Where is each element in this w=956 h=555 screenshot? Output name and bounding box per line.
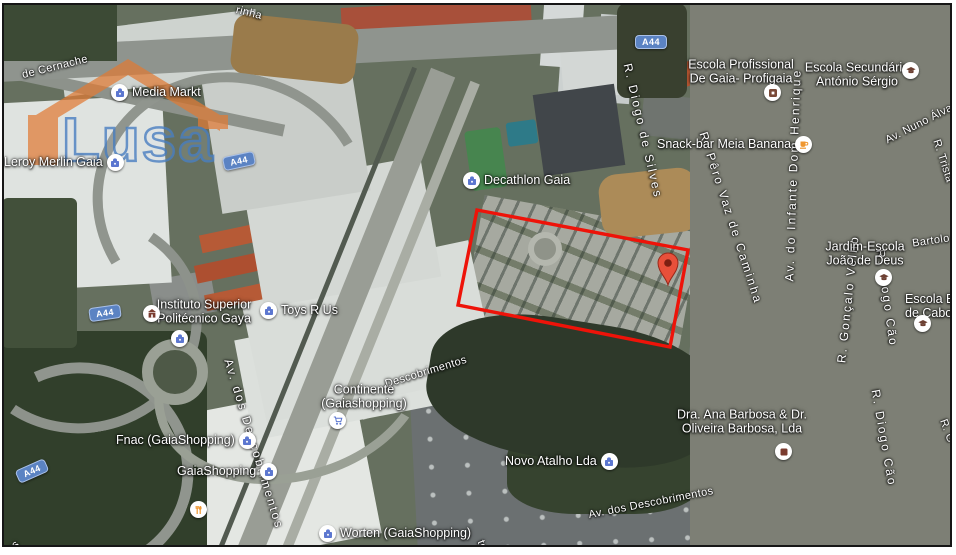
poi-worten[interactable]: Worten (GaiaShopping) xyxy=(319,525,471,542)
poi-label: Fnac (GaiaShopping) xyxy=(116,433,235,447)
map-marker-pin[interactable] xyxy=(658,253,678,285)
shopping-bag-icon xyxy=(260,463,277,480)
shopping-bag-icon xyxy=(239,432,256,449)
doctor-office-icon xyxy=(775,443,792,460)
poi-label-line1: Escola Ba xyxy=(905,292,952,306)
poi-escola-cabo[interactable]: Escola Ba de Cabo- xyxy=(905,292,952,321)
shopping-cart-icon xyxy=(329,412,346,429)
poi-label: Worten (GaiaShopping) xyxy=(340,526,471,540)
poi-continente[interactable]: Continente (Gaiashopping) xyxy=(321,383,406,412)
poi-snack-bar[interactable]: Snack-bar Meia Banana xyxy=(657,136,812,153)
poi-label: Novo Atalho Lda xyxy=(505,454,597,468)
poi-instituto-politecnico[interactable]: Instituto Superior Politécnico Gaya xyxy=(157,298,252,327)
poi-gaiashopping[interactable]: GaiaShopping xyxy=(177,463,277,480)
poi-label-line1: Dra. Ana Barbosa & Dr. xyxy=(677,408,807,422)
poi-label: Toys R Us xyxy=(281,303,338,317)
poi-label-line2: Oliveira Barbosa, Lda xyxy=(682,422,802,436)
poi-label: Decathlon Gaia xyxy=(484,173,570,187)
poi-label-line2: (Gaiashopping) xyxy=(321,397,406,411)
poi-label: Leroy Merlin Gaia xyxy=(4,155,103,169)
poi-escola-secundaria[interactable]: Escola Secundária António Sérgio xyxy=(805,61,909,90)
poi-novo-atalho[interactable]: Novo Atalho Lda xyxy=(505,453,618,470)
route-badge-a44: A44 xyxy=(635,35,667,49)
shopping-bag-icon xyxy=(601,453,618,470)
shopping-bag-icon xyxy=(319,525,336,542)
poi-label: Media Markt xyxy=(132,85,201,99)
cafe-cup-icon xyxy=(795,136,812,153)
shopping-bag-icon xyxy=(107,154,124,171)
poi-decathlon[interactable]: Decathlon Gaia xyxy=(463,172,570,189)
restaurant-icon xyxy=(190,501,207,518)
poi-label-line2: João de Deus xyxy=(826,254,903,268)
poi-toys-r-us[interactable]: Toys R Us xyxy=(260,302,338,319)
parcel-outline xyxy=(458,210,688,347)
poi-label-line1: Escola Secundária xyxy=(805,61,909,75)
shopping-bag-icon xyxy=(171,330,188,347)
satellite-map[interactable]: Lusa A44 A44 A44 A44 de Cernache rinha A… xyxy=(2,3,952,547)
poi-leroy-merlin[interactable]: Leroy Merlin Gaia xyxy=(4,154,124,171)
poi-label: Snack-bar Meia Banana xyxy=(657,137,791,151)
graduation-cap-icon xyxy=(875,269,892,286)
poi-label-line2: De Gaia- Profigaia xyxy=(690,72,793,86)
shopping-bag-icon xyxy=(111,84,128,101)
poi-fnac[interactable]: Fnac (GaiaShopping) xyxy=(116,432,256,449)
poi-label-line1: Jardim-Escola xyxy=(825,240,904,254)
poi-escola-profissional[interactable]: Escola Profissional De Gaia- Profigaia xyxy=(688,58,794,87)
poi-label-line2: Politécnico Gaya xyxy=(157,312,251,326)
poi-label-line1: Escola Profissional xyxy=(688,58,794,72)
poi-label-line1: Instituto Superior xyxy=(157,298,252,312)
poi-media-markt[interactable]: Media Markt xyxy=(111,84,201,101)
poi-dra-ana-barbosa[interactable]: Dra. Ana Barbosa & Dr. Oliveira Barbosa,… xyxy=(677,408,807,437)
graduation-cap-icon xyxy=(914,315,931,332)
school-tag-icon xyxy=(764,84,781,101)
school-building-icon xyxy=(143,305,160,322)
shopping-bag-icon xyxy=(260,302,277,319)
shopping-bag-icon xyxy=(463,172,480,189)
poi-jardim-escola[interactable]: Jardim-Escola João de Deus xyxy=(825,240,904,269)
poi-label-line2: António Sérgio xyxy=(816,75,898,89)
poi-label-line1: Continente xyxy=(334,383,394,397)
poi-label: GaiaShopping xyxy=(177,464,256,478)
graduation-cap-icon xyxy=(902,62,919,79)
